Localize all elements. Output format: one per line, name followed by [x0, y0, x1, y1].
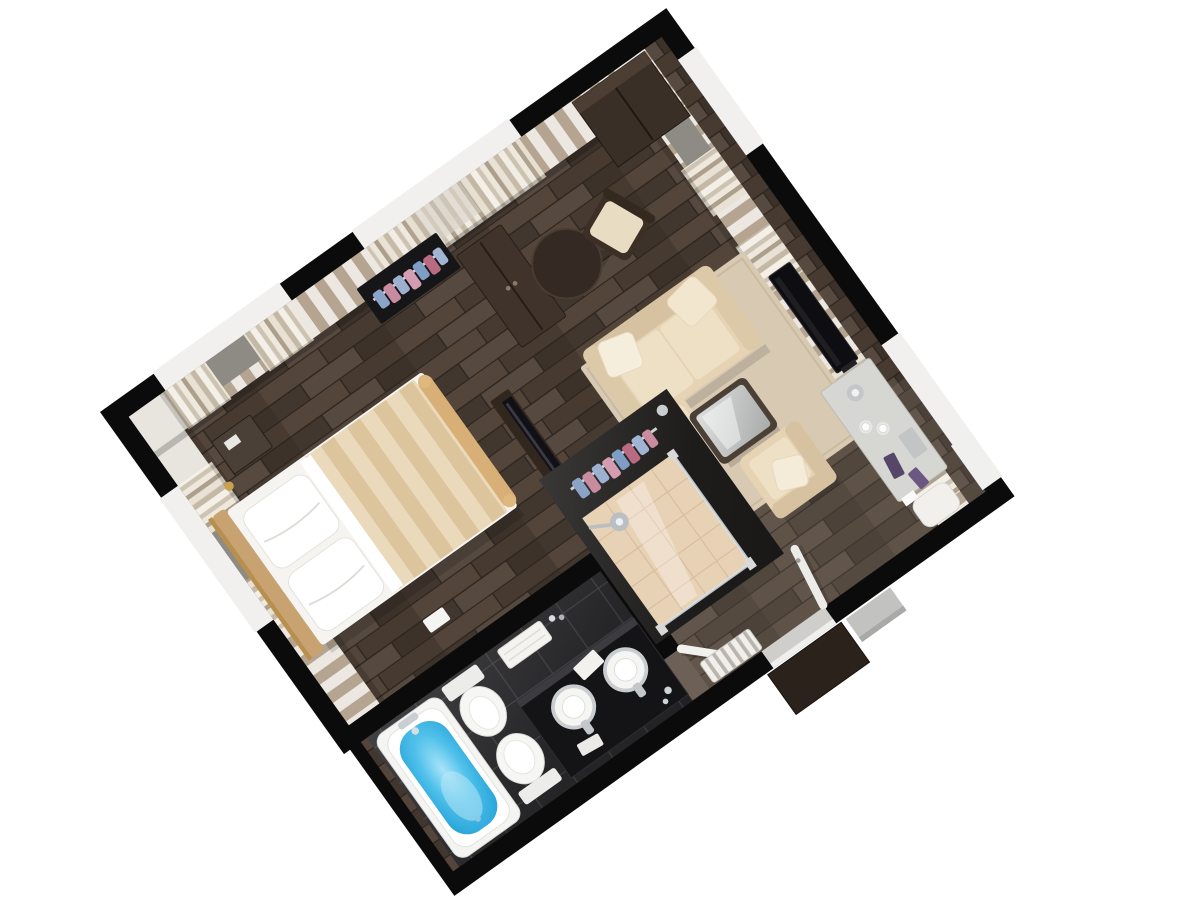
armchair-pillow [771, 454, 810, 493]
floor-plan-svg: 3D isometric floor plan render of a one-… [0, 0, 1200, 912]
apartment-plan: Bedroom [97, 5, 1045, 912]
floor-plan-render: 3D isometric floor plan render of a one-… [0, 0, 1200, 912]
